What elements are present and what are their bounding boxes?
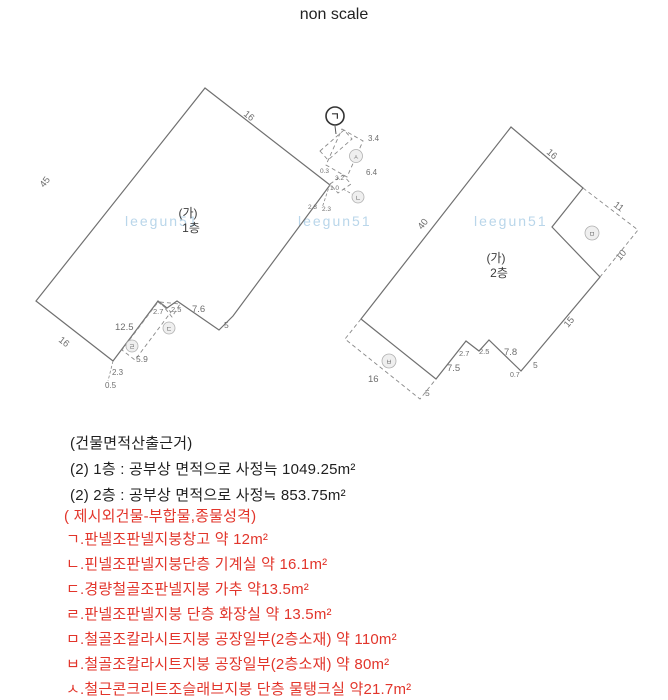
notes-block: (건물면적산출근거) (2) 1층 : 공부상 면적으로 사정늑 1049.25… (0, 0, 668, 700)
note-floor2-area: (2) 2층 : 공부상 면적으로 사정≒ 853.75m² (70, 484, 346, 505)
note-item-b: ㅂ.철골조칼라시트지붕 공장일부(2층소재) 약 80m² (66, 653, 389, 674)
note-item-m: ㅁ.철골조칼라시트지붕 공장일부(2층소재) 약 110m² (66, 628, 397, 649)
note-floor1-area: (2) 1층 : 공부상 면적으로 사정늑 1049.25m² (70, 458, 356, 479)
note-item-s: ㅅ.철근콘크리트조슬래브지붕 단층 물탱크실 약21.7m² (66, 678, 411, 699)
note-item-g: ㄱ.판넬조판넬지붕창고 약 12m² (66, 528, 268, 549)
note-item-n: ㄴ.핀넬조판넬지붕단층 기계실 약 16.1m² (66, 553, 327, 574)
appraisal-sketch-page: non scale leegun51 leegun51 leegun51 (가) (0, 0, 668, 700)
note-red-header: ( 제시외건물-부합물,종물성격) (64, 505, 256, 526)
note-item-r: ㄹ.판넬조판넬지붕 단층 화장실 약 13.5m² (66, 603, 332, 624)
note-item-d: ㄷ.경량철골조판넬지붕 가추 약13.5m² (66, 578, 309, 599)
note-header: (건물면적산출근거) (70, 432, 192, 453)
